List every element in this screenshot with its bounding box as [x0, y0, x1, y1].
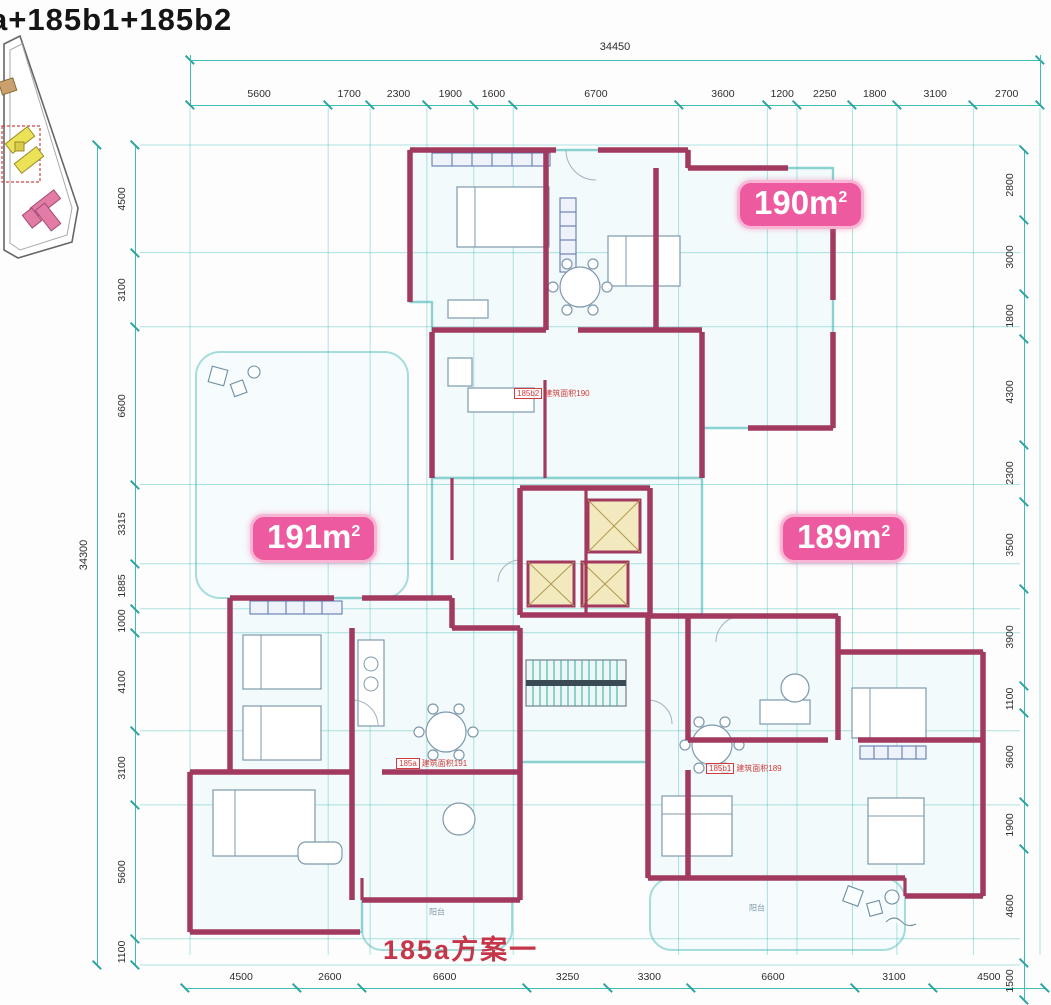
balcony-label-right: 阳台 [749, 903, 765, 914]
plan-name: 185a方案一 [383, 928, 538, 967]
unit-label-185b1: 185b1 建筑面积189 [706, 763, 782, 774]
unit-label-185a: 185a 建筑面积191 [396, 758, 467, 769]
badge-190: 190m2 [737, 180, 864, 229]
floor-plan [0, 0, 1051, 1004]
unit-label-185b2: 185b2 建筑面积190 [514, 388, 590, 399]
balcony-label-left: 阳台 [429, 907, 445, 918]
badge-189: 189m2 [780, 514, 907, 563]
stair-landing [526, 680, 626, 686]
badge-191: 191m2 [250, 514, 377, 563]
unit-185a-outline [190, 598, 520, 932]
staircase [526, 660, 626, 706]
